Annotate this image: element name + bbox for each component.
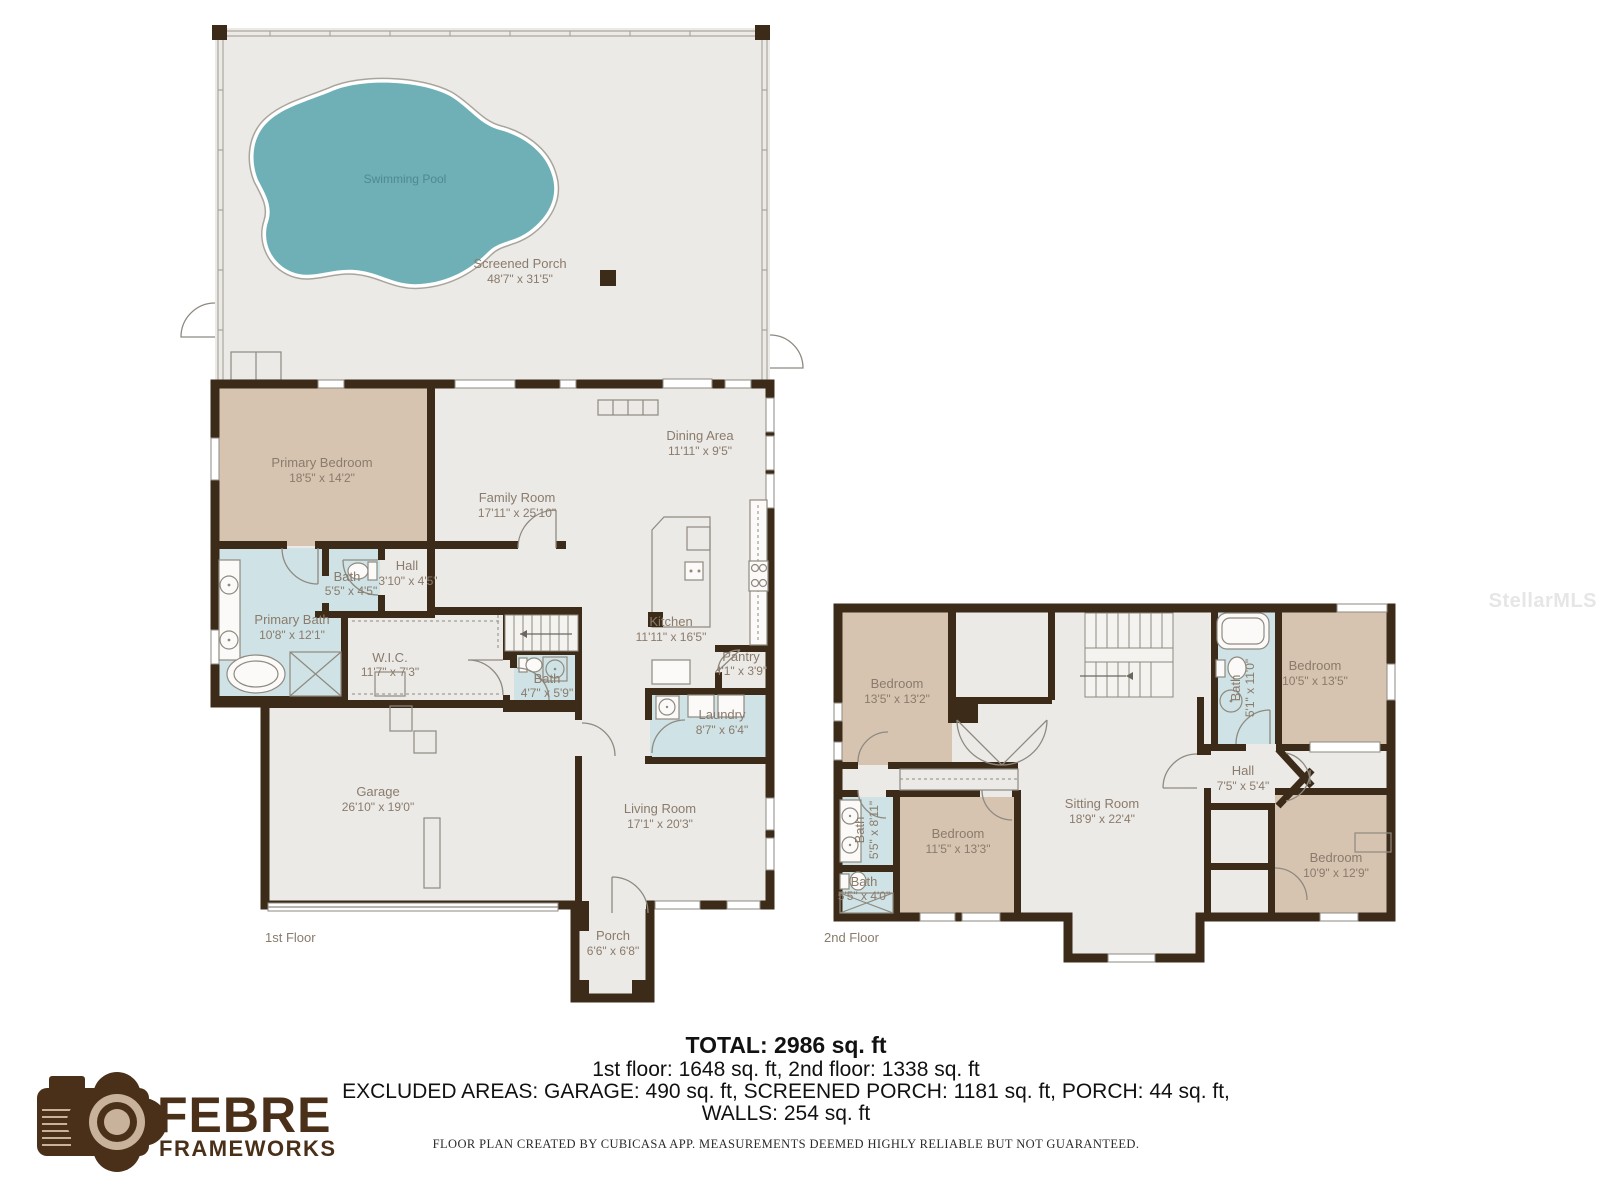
svg-text:17'11" x 25'10": 17'11" x 25'10" [478, 506, 556, 520]
svg-text:Porch: Porch [596, 928, 630, 943]
svg-text:Laundry: Laundry [699, 707, 746, 722]
floor-plan-svg: Swimming Pool Screened Porch 48'7" x 31'… [0, 0, 1600, 1200]
svg-text:11'11" x 9'5": 11'11" x 9'5" [668, 444, 732, 458]
svg-text:4'1" x 3'9": 4'1" x 3'9" [715, 664, 767, 678]
svg-text:Primary Bath: Primary Bath [254, 612, 329, 627]
svg-text:5'1" x 11'0": 5'1" x 11'0" [1243, 659, 1257, 717]
summary-excluded: EXCLUDED AREAS: GARAGE: 490 sq. ft, SCRE… [342, 1080, 1230, 1103]
stellar-mls-watermark: StellarMLS [1489, 590, 1597, 612]
summary-total: TOTAL: 2986 sq. ft [685, 1032, 886, 1058]
svg-text:Sitting Room: Sitting Room [1065, 796, 1139, 811]
svg-text:Hall: Hall [396, 558, 419, 573]
svg-text:48'7" x 31'5": 48'7" x 31'5" [487, 272, 553, 286]
second-floor-caption: 2nd Floor [824, 930, 880, 945]
svg-text:10'9" x 12'9": 10'9" x 12'9" [1303, 866, 1369, 880]
svg-text:18'9" x 22'4": 18'9" x 22'4" [1069, 812, 1135, 826]
svg-text:3'10" x 4'5": 3'10" x 4'5" [378, 574, 437, 588]
svg-text:11'7" x 7'3": 11'7" x 7'3" [361, 665, 419, 679]
screen-door-arc-right [770, 335, 803, 368]
svg-text:Screened Porch: Screened Porch [473, 256, 566, 271]
refrigerator [652, 660, 690, 684]
svg-text:18'5" x 14'2": 18'5" x 14'2" [289, 471, 355, 485]
porch-column [600, 270, 616, 286]
floor-plan-page: Swimming Pool Screened Porch 48'7" x 31'… [0, 0, 1600, 1200]
svg-text:8'7" x 6'4": 8'7" x 6'4" [696, 723, 748, 737]
logo-tagline: FRAMEWORKS [159, 1136, 337, 1161]
pantry-label: Pantry4'1" x 3'9" [715, 649, 767, 678]
logo-name: FEBRE [157, 1087, 331, 1143]
svg-text:5'5" x 4'5": 5'5" x 4'5" [325, 584, 377, 598]
svg-text:Bath: Bath [851, 874, 878, 889]
svg-text:6'6" x 6'8": 6'6" x 6'8" [587, 944, 639, 958]
first-floor: Primary Bedroom18'5" x 14'2" Family Room… [211, 379, 774, 998]
svg-text:7'5" x 5'4": 7'5" x 5'4" [1217, 779, 1269, 793]
svg-text:5'5" x 4'0": 5'5" x 4'0" [838, 889, 890, 903]
bedroom-mid-left-area [900, 797, 1014, 917]
svg-text:Bedroom: Bedroom [871, 676, 924, 691]
stairs-first-floor [498, 615, 578, 651]
svg-text:Bath: Bath [334, 569, 361, 584]
svg-text:W.I.C.: W.I.C. [372, 650, 407, 665]
svg-text:Family Room: Family Room [479, 490, 556, 505]
svg-text:Hall: Hall [1232, 763, 1255, 778]
febre-frameworks-logo: FEBRE FRAMEWORKS [37, 1072, 337, 1172]
stairs-second-floor [1080, 613, 1173, 697]
svg-text:4'7" x 5'9": 4'7" x 5'9" [521, 686, 573, 700]
svg-text:Pantry: Pantry [722, 649, 760, 664]
svg-text:Kitchen: Kitchen [649, 614, 692, 629]
svg-text:26'10" x 19'0": 26'10" x 19'0" [342, 800, 415, 814]
porch-post [755, 25, 770, 40]
screened-porch: Swimming Pool Screened Porch 48'7" x 31'… [181, 25, 803, 388]
front-door-opening [608, 901, 646, 909]
svg-text:Bath: Bath [852, 817, 867, 844]
svg-text:Garage: Garage [356, 784, 399, 799]
svg-text:10'8" x 12'1": 10'8" x 12'1" [259, 628, 325, 642]
summary-floors: 1st floor: 1648 sq. ft, 2nd floor: 1338 … [592, 1058, 980, 1081]
porch-post [212, 25, 227, 40]
svg-text:11'5" x 13'3": 11'5" x 13'3" [926, 842, 991, 856]
svg-text:10'5" x 13'5": 10'5" x 13'5" [1282, 674, 1348, 688]
second-floor: Bedroom13'5" x 13'2" Bath5'1" x 11'0" Be… [824, 604, 1395, 962]
camera-icon [37, 1072, 167, 1172]
svg-text:Dining Area: Dining Area [666, 428, 734, 443]
svg-text:Primary Bedroom: Primary Bedroom [271, 455, 372, 470]
svg-text:13'5" x 13'2": 13'5" x 13'2" [864, 692, 930, 706]
svg-text:Bedroom: Bedroom [1289, 658, 1342, 673]
first-floor-caption: 1st Floor [265, 930, 316, 945]
svg-text:17'1" x 20'3": 17'1" x 20'3" [627, 817, 693, 831]
svg-text:Bath: Bath [1228, 675, 1243, 702]
svg-text:Living Room: Living Room [624, 801, 696, 816]
svg-text:Bath: Bath [534, 671, 561, 686]
svg-text:11'11" x 16'5": 11'11" x 16'5" [636, 630, 707, 644]
svg-text:Bedroom: Bedroom [932, 826, 985, 841]
swimming-pool-label: Swimming Pool [364, 172, 447, 186]
summary-block: TOTAL: 2986 sq. ft 1st floor: 1648 sq. f… [342, 1032, 1230, 1151]
svg-text:Bedroom: Bedroom [1310, 850, 1363, 865]
summary-disclaimer: FLOOR PLAN CREATED BY CUBICASA APP. MEAS… [433, 1137, 1140, 1151]
bay-window [1310, 742, 1380, 752]
screen-door-arc-left [181, 303, 215, 337]
summary-walls: WALLS: 254 sq. ft [702, 1102, 871, 1125]
svg-text:5'5" x 8'11": 5'5" x 8'11" [867, 801, 881, 859]
